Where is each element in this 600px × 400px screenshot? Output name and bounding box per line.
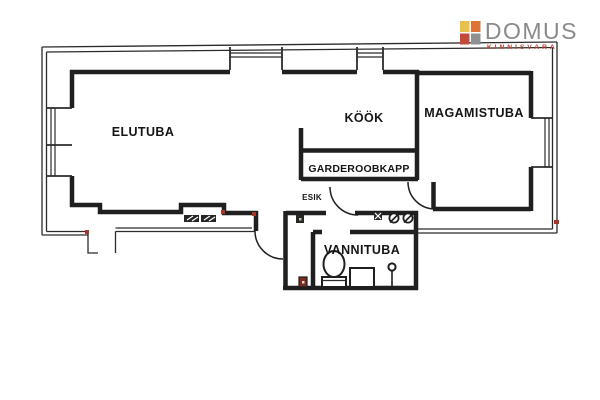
toilet-tank bbox=[322, 277, 346, 287]
room-label-esik: ESIK bbox=[302, 193, 322, 202]
accent-tick bbox=[252, 212, 256, 216]
floor-plan: ELUTUBA KÖÖK MAGAMISTUBA GARDEROOBKAPP E… bbox=[0, 0, 600, 400]
logo-square-tl bbox=[460, 21, 470, 32]
accent-tick bbox=[85, 230, 89, 234]
socket-dot bbox=[299, 218, 302, 221]
room-label-magamistuba: MAGAMISTUBA bbox=[424, 106, 524, 120]
esik-door-arc bbox=[330, 187, 358, 215]
wall-hatch-marks bbox=[184, 215, 216, 222]
brand-tagline: KINNISVARA bbox=[487, 45, 558, 52]
interior-walls bbox=[70, 70, 531, 290]
accent-tick bbox=[221, 210, 225, 214]
brand-name: DOMUS bbox=[485, 20, 578, 43]
window-left bbox=[47, 108, 72, 176]
window-top-2 bbox=[357, 47, 383, 70]
entry-notch-wall bbox=[88, 232, 98, 254]
logo-square-bl bbox=[460, 34, 470, 45]
socket-dot bbox=[302, 281, 305, 284]
appliance-icon bbox=[350, 268, 374, 287]
room-label-elutuba: ELUTUBA bbox=[112, 125, 175, 139]
floor-plan-page: ELUTUBA KÖÖK MAGAMISTUBA GARDEROOBKAPP E… bbox=[0, 0, 600, 400]
brand-logo-text: DOMUS KINNISVARA bbox=[485, 20, 578, 52]
accent-tick bbox=[554, 220, 559, 224]
brand-logo: DOMUS KINNISVARA bbox=[460, 20, 578, 52]
shower-icon bbox=[388, 263, 395, 270]
window-right-bedroom bbox=[531, 118, 553, 167]
logo-square-br bbox=[471, 34, 481, 45]
entry-door-arc bbox=[255, 231, 283, 259]
room-label-vannituba: VANNITUBA bbox=[324, 243, 400, 257]
room-labels: ELUTUBA KÖÖK MAGAMISTUBA GARDEROOBKAPP E… bbox=[112, 106, 524, 257]
logo-square-tr bbox=[471, 21, 481, 32]
room-label-garderoobkapp: GARDEROOBKAPP bbox=[308, 163, 409, 175]
magamistuba-door-arc bbox=[408, 182, 435, 209]
elutuba-bottom-wall bbox=[70, 205, 256, 231]
brand-logo-icon bbox=[460, 20, 481, 47]
room-label-kook: KÖÖK bbox=[344, 110, 383, 125]
